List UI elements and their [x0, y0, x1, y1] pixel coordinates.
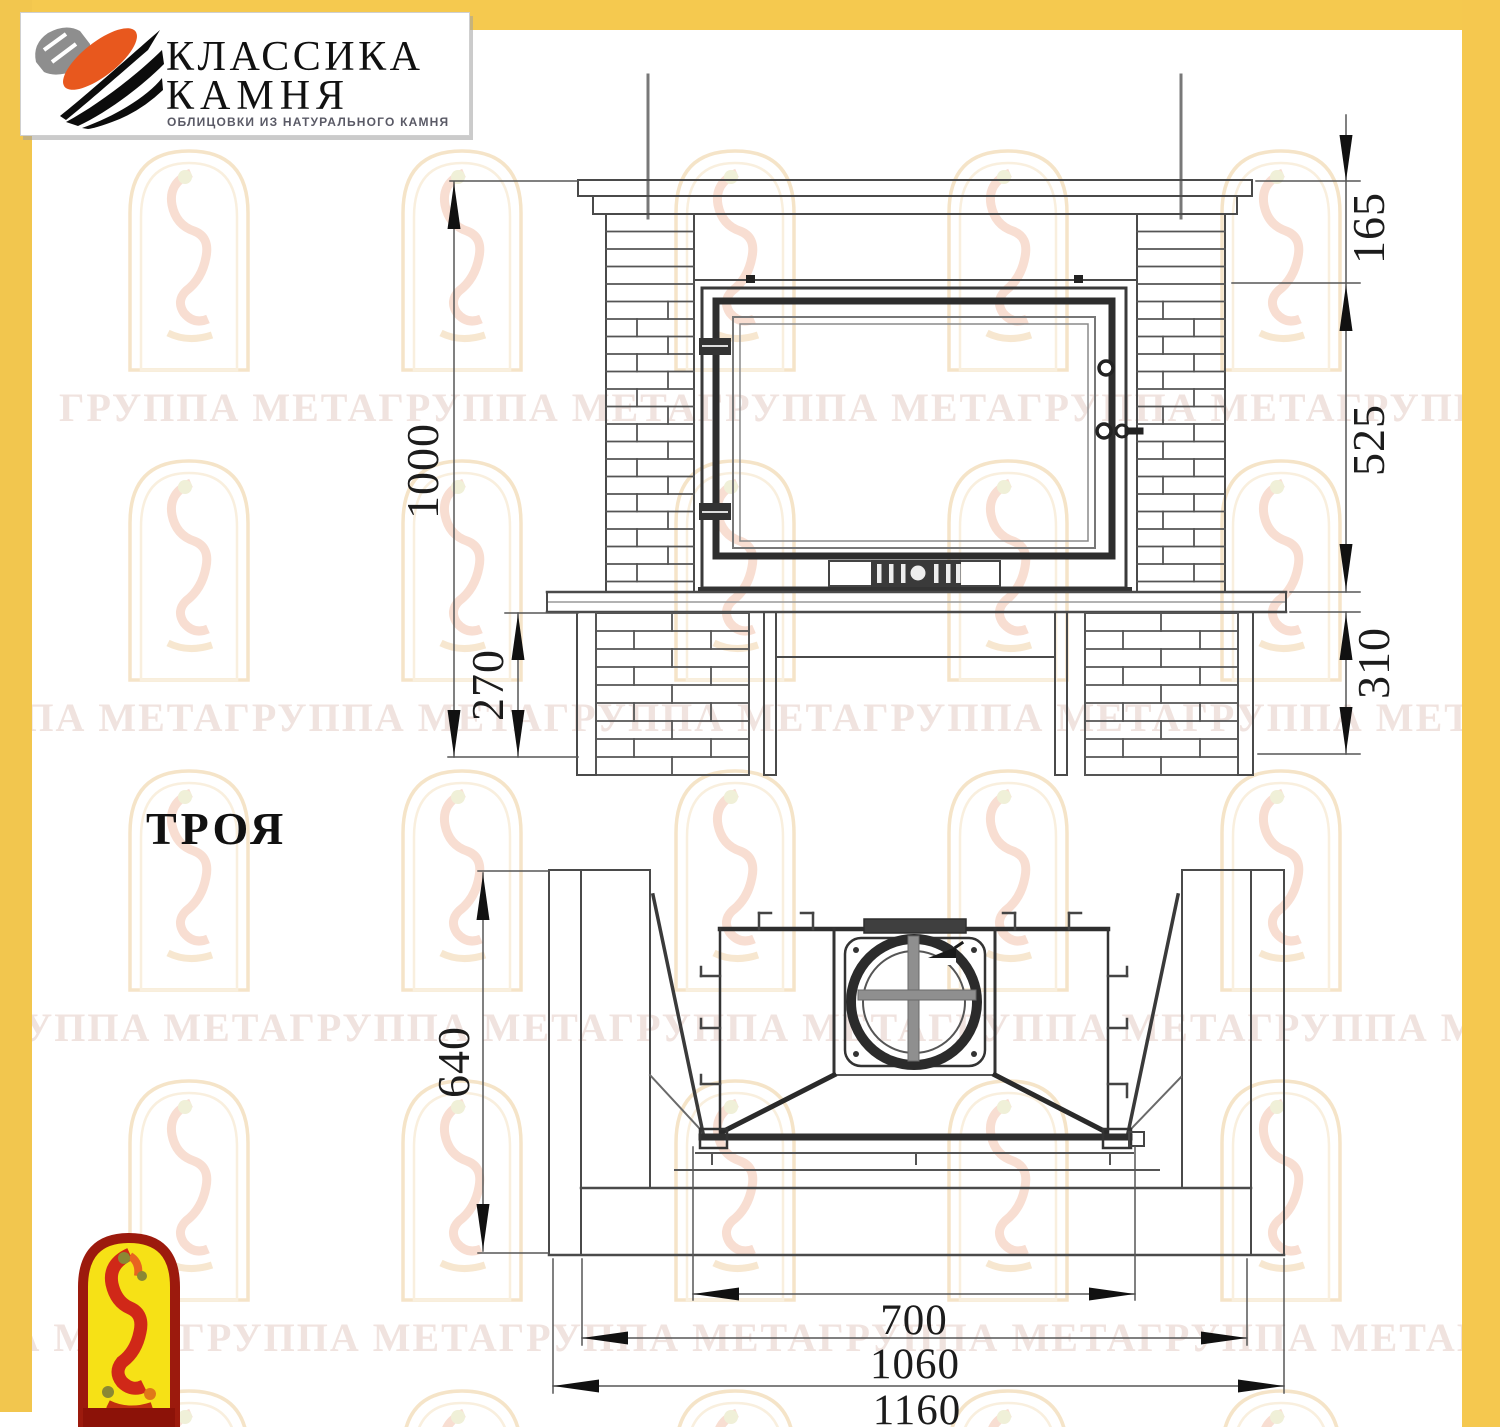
svg-text:700: 700: [880, 1297, 948, 1344]
svg-text:165: 165: [1343, 192, 1394, 264]
svg-text:1060: 1060: [870, 1341, 960, 1388]
svg-text:525: 525: [1343, 404, 1394, 476]
svg-text:270: 270: [462, 649, 513, 721]
svg-text:640: 640: [428, 1026, 479, 1098]
svg-text:310: 310: [1348, 627, 1399, 699]
svg-text:1160: 1160: [873, 1387, 961, 1427]
svg-text:1000: 1000: [397, 423, 448, 519]
